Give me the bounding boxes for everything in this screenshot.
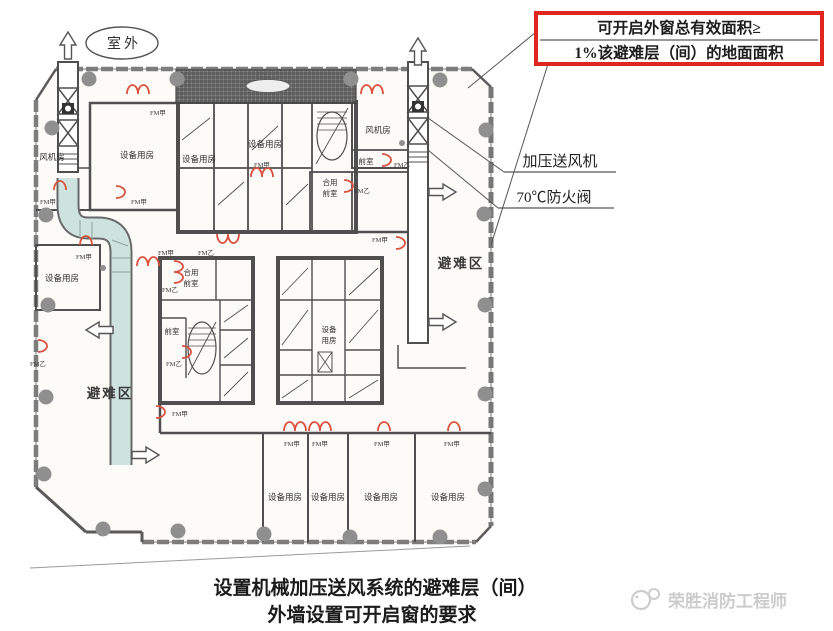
anteroom-label: 前室 xyxy=(165,326,180,336)
fan-room-label: 风机房 xyxy=(39,152,65,162)
equipment-room-label: 设备用房 xyxy=(431,492,465,502)
caption: 设置机械加压送风系统的避难层（间） 外墙设置可开启窗的要求 xyxy=(213,576,536,626)
equipment-room-label: 设备用房 xyxy=(182,154,216,164)
door-label: FM甲 xyxy=(444,440,460,448)
door-label: FM甲 xyxy=(312,440,328,448)
door-label: FM甲 xyxy=(150,109,166,117)
equipment-room-label: 设备用房 xyxy=(248,139,282,149)
shared-anteroom-label: 合用 xyxy=(184,267,199,277)
door-label: FM乙 xyxy=(198,249,214,257)
door-label: FM乙 xyxy=(354,187,370,195)
caption-line2: 外墙设置可开启窗的要求 xyxy=(267,603,477,626)
door-label: FM乙 xyxy=(162,286,178,294)
door-label: FM甲 xyxy=(254,161,270,169)
equipment-room-label: 设备用房 xyxy=(364,492,398,502)
equipment-room-label: 设备用房 xyxy=(120,150,154,160)
note-line2: 1%该避难层（间）的地面面积 xyxy=(574,43,784,62)
door-label: FM甲 xyxy=(131,198,147,206)
watermark-logo-icon xyxy=(632,591,650,609)
fan-callout: 加压送风机 xyxy=(522,153,597,170)
floor-plan-figure: FM甲 FM甲 FM甲 FM甲 FM乙 FM甲 FM乙 FM乙 FM乙 FM甲 … xyxy=(0,0,833,631)
door-label: FM甲 xyxy=(172,410,188,418)
screenshot-root: FM甲 FM甲 FM甲 FM甲 FM乙 FM甲 FM乙 FM乙 FM乙 FM甲 … xyxy=(0,0,833,631)
equipment-room-label: 用房 xyxy=(322,335,337,345)
door-label: FM甲 xyxy=(158,249,174,257)
damper-callout: 70℃防火阀 xyxy=(516,189,591,206)
equipment-room-label: 设备 xyxy=(322,324,337,334)
watermark: 荣胜消防工程师 xyxy=(632,589,787,611)
right-fan-shaft xyxy=(408,62,428,343)
note-line1: 可开启外窗总有效面积≥ xyxy=(597,18,761,37)
fan-room-label: 风机房 xyxy=(365,125,391,135)
door-label: FM甲 xyxy=(374,440,390,448)
door-label: FM甲 xyxy=(284,440,300,448)
shared-anteroom-label: 合用 xyxy=(323,177,338,187)
shared-anteroom-label: 前室 xyxy=(323,188,338,198)
anteroom-label: 前室 xyxy=(359,156,374,166)
door-label: FM乙 xyxy=(30,360,46,368)
equipment-room-label: 设备用房 xyxy=(45,273,79,283)
door-label: FM甲 xyxy=(40,198,56,206)
door-label: FM甲 xyxy=(76,253,92,261)
caption-line1: 设置机械加压送风系统的避难层（间） xyxy=(213,576,536,599)
refuge-area-label-right: 避难区 xyxy=(438,255,485,271)
equipment-room-label: 设备用房 xyxy=(268,492,302,502)
refuge-area-label-left: 避难区 xyxy=(87,385,134,401)
outdoor-label: 室外 xyxy=(107,35,141,52)
hatched-plenum-band xyxy=(176,70,356,103)
door-label: FM乙 xyxy=(166,360,182,368)
watermark-logo-icon xyxy=(649,589,659,599)
watermark-text: 荣胜消防工程师 xyxy=(667,591,787,611)
door-label: FM乙 xyxy=(394,161,410,169)
door-label: FM甲 xyxy=(372,236,388,244)
equipment-room-label: 设备用房 xyxy=(311,492,345,502)
shared-anteroom-label: 前室 xyxy=(184,278,199,288)
